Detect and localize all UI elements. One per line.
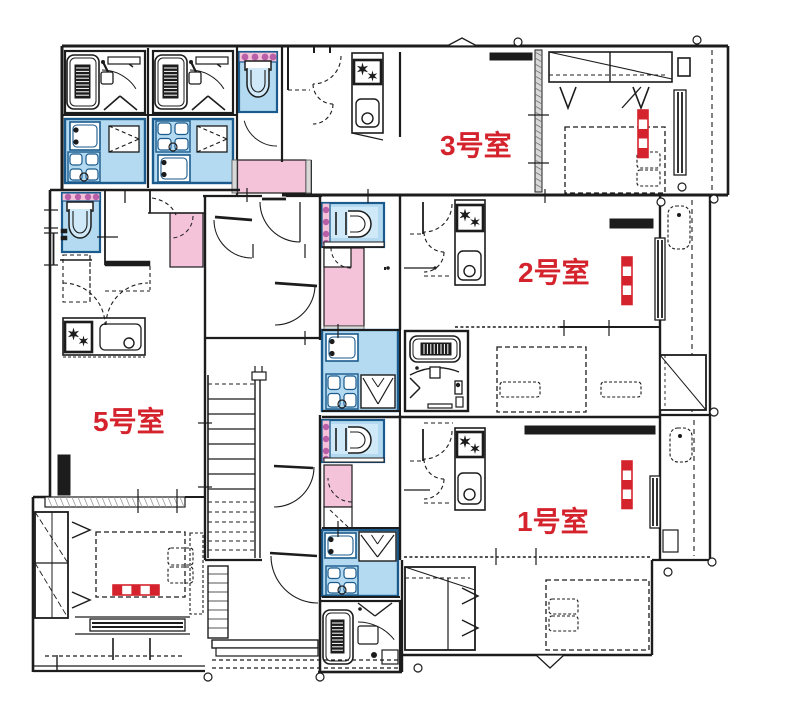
svg-text:2号室: 2号室 [518,256,590,288]
svg-text:5号室: 5号室 [93,405,165,437]
svg-text:1号室: 1号室 [517,505,589,537]
svg-text:3号室: 3号室 [440,129,512,161]
